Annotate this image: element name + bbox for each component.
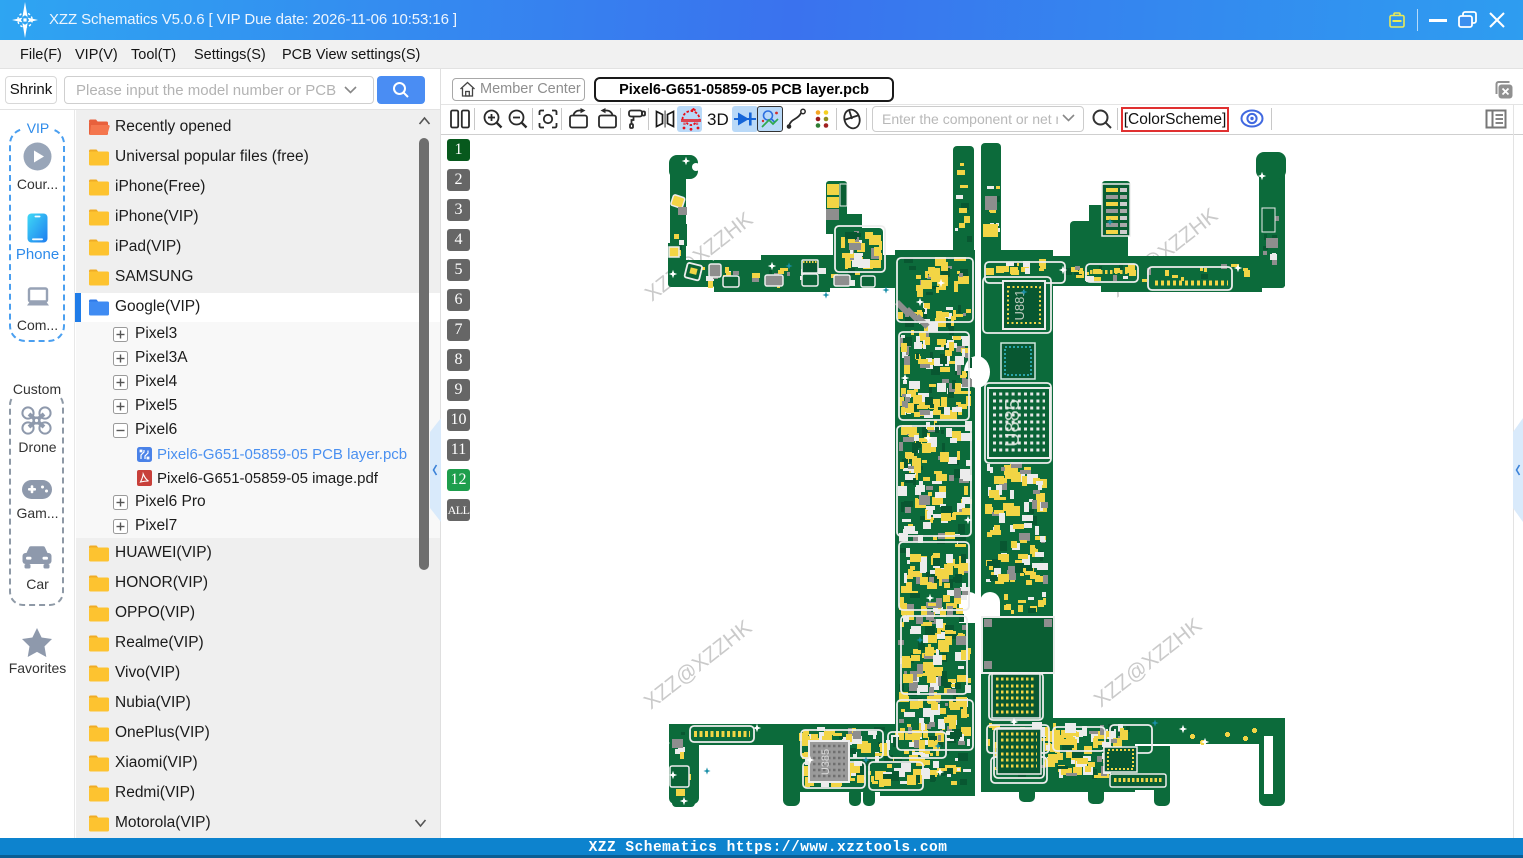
svg-text:U385: U385 — [820, 749, 832, 775]
svg-text:U881: U881 — [1012, 289, 1027, 320]
svg-text:XZZ@XZZHK: XZZ@XZZHK — [1090, 614, 1206, 712]
svg-text:U885: U885 — [1002, 399, 1024, 447]
svg-text:XZZ@XZZHK: XZZ@XZZHK — [640, 616, 756, 714]
